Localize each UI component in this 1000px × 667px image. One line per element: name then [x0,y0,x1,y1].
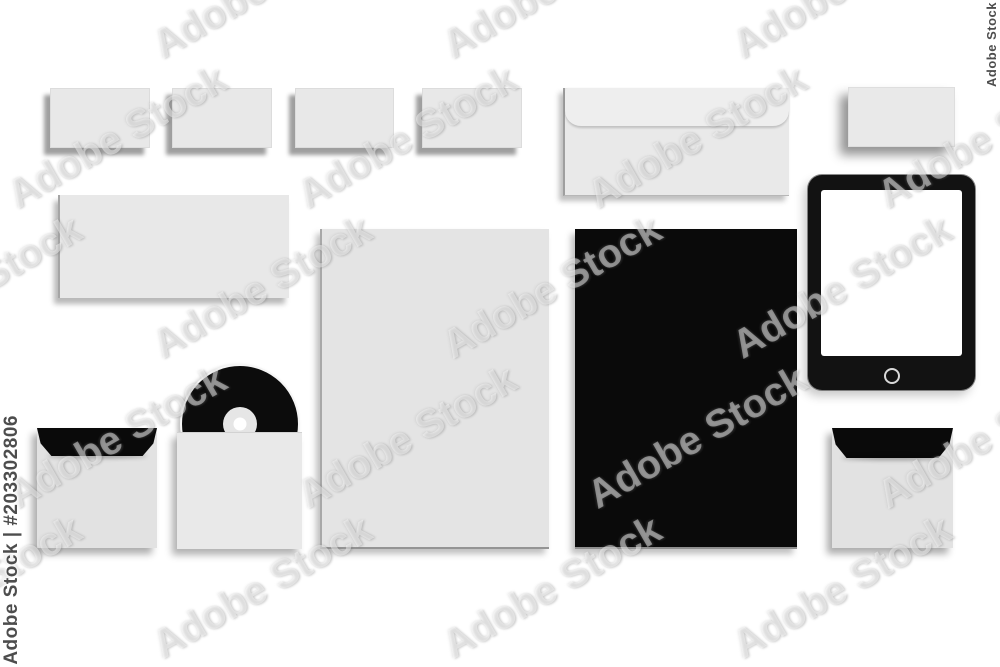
stationery-mockup-photo: Adobe StockAdobe StockAdobe StockAdobe S… [0,0,1000,667]
flap-shadow [47,454,148,458]
business-card-3 [295,88,394,148]
square-envelope-right [832,428,953,548]
square-envelope-left-flap [37,428,157,456]
watermark-tile: Adobe Stock [725,0,959,68]
watermark-tile: Adobe Stock [0,0,89,68]
tablet-screen [821,190,962,356]
watermark-tile: Adobe Stock [145,0,379,68]
letterhead-light [320,229,549,549]
business-card-4 [422,88,522,148]
dl-envelope [563,88,789,196]
watermark-right-label: Adobe Stock [984,2,999,87]
cd-center-hub [234,418,247,431]
compliment-slip [58,195,289,298]
business-card-2 [172,88,272,148]
square-envelope-left [37,428,157,548]
dl-envelope-flap [565,88,789,127]
watermark-left-label: Adobe Stock | #203302806 [1,415,23,665]
cd-sleeve [177,432,302,549]
square-envelope-right-flap [832,428,953,458]
small-card [848,87,955,147]
watermark-tile: Adobe Stock [435,0,669,68]
flap-shadow [842,456,944,460]
letterhead-black [575,229,797,549]
home-button-icon [884,368,900,384]
business-card-1 [50,88,150,148]
tablet [808,175,975,390]
